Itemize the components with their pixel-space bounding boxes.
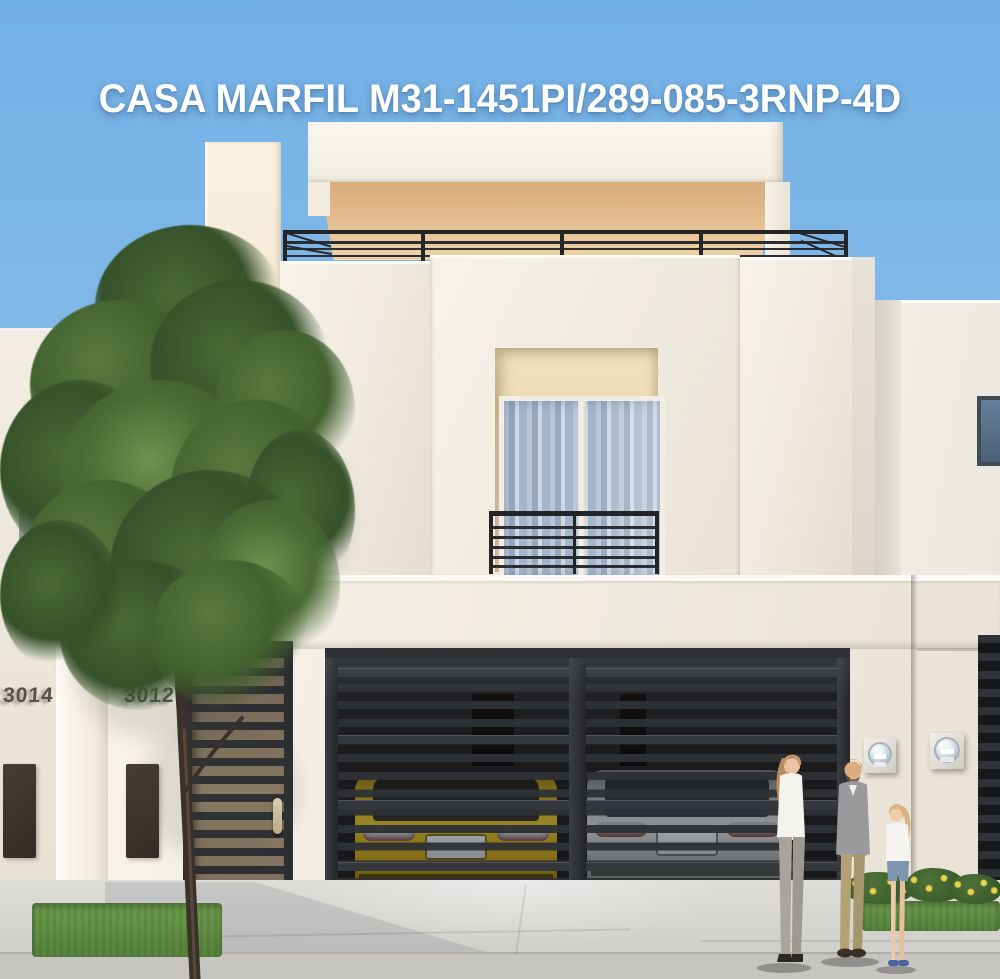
man-figure bbox=[836, 759, 870, 958]
meter-label bbox=[940, 749, 954, 754]
railing-post bbox=[655, 511, 659, 574]
garage-gate-rail bbox=[325, 735, 850, 744]
railing-post bbox=[489, 511, 493, 574]
column-groove bbox=[917, 648, 978, 651]
second-floor-side-face bbox=[852, 257, 875, 576]
electric-meter bbox=[930, 733, 964, 781]
architectural-rendering: CASA MARFIL M31-1451PI/289-085-3RNP-4D bbox=[0, 0, 1000, 979]
mailbox-left-neighbor bbox=[3, 764, 36, 858]
foliage-blob bbox=[150, 560, 310, 710]
railing-post bbox=[421, 230, 425, 262]
tree-foliage bbox=[0, 200, 380, 720]
railing-post bbox=[573, 511, 576, 574]
rooftop-canopy-slab bbox=[308, 122, 783, 182]
garage-gate-reflection bbox=[325, 658, 850, 700]
railing-brace bbox=[800, 232, 845, 247]
family-group bbox=[746, 744, 931, 979]
neighbor-right-gate bbox=[978, 635, 1000, 915]
neighbor-right-window bbox=[977, 396, 1000, 466]
woman-figure bbox=[776, 755, 805, 962]
second-floor-wall-right bbox=[738, 257, 852, 576]
girl-figure bbox=[886, 804, 911, 966]
page-title: CASA MARFIL M31-1451PI/289-085-3RNP-4D bbox=[25, 77, 975, 122]
juliet-balcony-railing bbox=[489, 511, 659, 574]
flower-bush bbox=[950, 874, 1000, 904]
neighbor-right-side-face bbox=[875, 300, 901, 576]
garage-gate-top-rail bbox=[325, 648, 850, 658]
foliage-blob bbox=[0, 520, 120, 670]
